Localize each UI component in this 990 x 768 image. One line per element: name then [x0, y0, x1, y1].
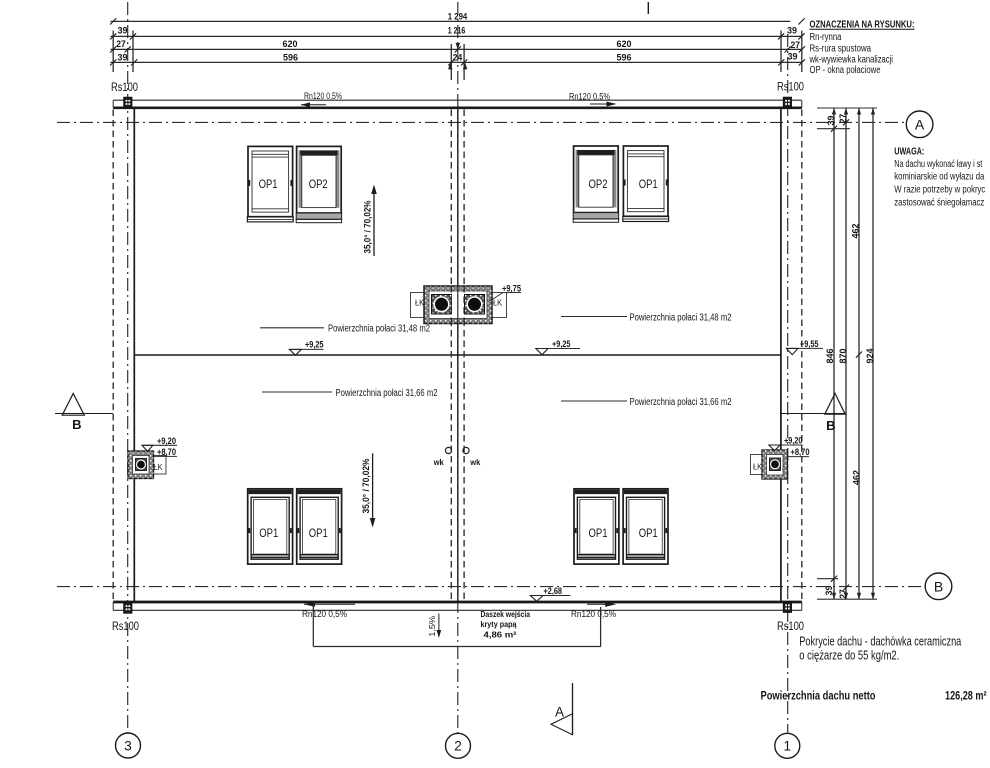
svg-text:ŁK: ŁK	[415, 298, 424, 308]
svg-text:2: 2	[454, 739, 462, 754]
svg-text:Rn120 0,5%: Rn120 0,5%	[304, 91, 342, 101]
svg-text:kominiarskie od wyłazu da: kominiarskie od wyłazu da	[894, 172, 984, 183]
svg-text:+9,25: +9,25	[552, 339, 571, 349]
svg-text:Powierzchnia połaci 31,66 m2: Powierzchnia połaci 31,66 m2	[630, 397, 732, 408]
svg-text:126,28 m²: 126,28 m²	[945, 688, 987, 702]
svg-text:596: 596	[617, 52, 632, 63]
svg-text:620: 620	[617, 39, 632, 50]
svg-text:wk: wk	[433, 457, 444, 467]
svg-text:39: 39	[788, 51, 798, 62]
svg-text:39: 39	[824, 586, 835, 596]
svg-text:Rn120 0,5%: Rn120 0,5%	[302, 609, 347, 619]
svg-text:ŁK: ŁK	[154, 462, 163, 472]
svg-text:OP1: OP1	[309, 528, 328, 540]
svg-text:+9,55: +9,55	[800, 339, 819, 349]
svg-text:ŁK: ŁK	[493, 298, 502, 308]
svg-text:846: 846	[825, 349, 836, 364]
svg-text:+9,75: +9,75	[502, 283, 521, 293]
svg-text:Pokrycie dachu - dachówka cera: Pokrycie dachu - dachówka ceramiczna	[799, 634, 961, 648]
svg-text:27: 27	[838, 589, 849, 599]
svg-text:39: 39	[118, 52, 128, 63]
svg-text:620: 620	[283, 39, 298, 50]
svg-text:1,5%: 1,5%	[427, 615, 437, 636]
svg-text:462: 462	[852, 470, 863, 485]
svg-text:39: 39	[787, 26, 797, 37]
svg-text:1 216: 1 216	[448, 26, 466, 37]
svg-text:o ciężarze do 55 kg/m2.: o ciężarze do 55 kg/m2.	[799, 648, 899, 662]
svg-text:462: 462	[851, 224, 862, 239]
svg-text:B: B	[826, 418, 835, 433]
svg-text:Rn120 0,5%: Rn120 0,5%	[571, 609, 616, 619]
svg-text:+9,25: +9,25	[305, 340, 324, 350]
svg-text:Rn120 0,5%: Rn120 0,5%	[569, 91, 610, 101]
svg-text:35,0° / 70,02%: 35,0° / 70,02%	[363, 201, 373, 254]
svg-text:1: 1	[784, 739, 792, 754]
svg-text:A: A	[555, 705, 564, 720]
svg-text:OP1: OP1	[589, 528, 608, 540]
svg-text:3: 3	[124, 738, 132, 753]
svg-text:ŁK: ŁK	[753, 462, 762, 472]
svg-text:+2,68: +2,68	[544, 586, 563, 596]
svg-text:+9,20: +9,20	[784, 435, 803, 445]
svg-text:Powierzchnia połaci 31,48 m2: Powierzchnia połaci 31,48 m2	[328, 323, 430, 334]
svg-text:27: 27	[791, 40, 801, 51]
svg-text:OP2: OP2	[589, 179, 608, 191]
svg-text:OP1: OP1	[259, 528, 278, 540]
svg-text:Powierzchnia połaci 31,48 m2: Powierzchnia połaci 31,48 m2	[630, 313, 732, 324]
svg-text:wk: wk	[469, 457, 480, 467]
svg-text:27: 27	[116, 39, 126, 50]
svg-text:+8,70: +8,70	[791, 447, 810, 457]
svg-text:Rs100: Rs100	[112, 621, 139, 633]
svg-text:+9,20: +9,20	[157, 436, 176, 446]
svg-text:OP2: OP2	[309, 179, 328, 191]
svg-text:OP1: OP1	[639, 179, 658, 191]
svg-text:B: B	[934, 578, 943, 594]
svg-text:39: 39	[826, 116, 837, 126]
svg-text:Rs-rura spustowa: Rs-rura spustowa	[810, 43, 872, 54]
svg-text:924: 924	[865, 348, 876, 364]
svg-text:zastosować śniegołamacz: zastosować śniegołamacz	[894, 198, 984, 209]
svg-text:OP1: OP1	[259, 179, 278, 191]
svg-text:UWAGA:: UWAGA:	[894, 146, 924, 158]
svg-text:Rs100: Rs100	[777, 621, 804, 633]
svg-text:Powierzchnia dachu netto: Powierzchnia dachu netto	[761, 688, 876, 702]
svg-text:Rn-rynna: Rn-rynna	[810, 32, 842, 43]
svg-text:27: 27	[838, 114, 849, 124]
svg-text:Daszek wejścia: Daszek wejścia	[481, 609, 531, 619]
svg-text:B: B	[72, 417, 81, 432]
svg-text:Powierzchnia połaci 31,66 m2: Powierzchnia połaci 31,66 m2	[336, 388, 438, 399]
svg-text:A: A	[915, 116, 925, 132]
svg-text:+8,70: +8,70	[157, 447, 176, 457]
svg-text:35,0° / 70,02%: 35,0° / 70,02%	[361, 459, 371, 514]
svg-text:Rs100: Rs100	[777, 82, 804, 94]
svg-text:wk-wywiewka kanalizacji: wk-wywiewka kanalizacji	[809, 54, 893, 65]
svg-text:4,86 m²: 4,86 m²	[484, 630, 517, 640]
svg-text:kryty papą: kryty papą	[481, 619, 517, 629]
svg-text:596: 596	[283, 52, 298, 63]
svg-text:Rs100: Rs100	[111, 82, 138, 94]
svg-text:39: 39	[118, 26, 128, 37]
svg-text:OP - okna połaciowe: OP - okna połaciowe	[810, 65, 881, 76]
svg-text:870: 870	[838, 349, 849, 364]
svg-text:W razie potrzeby w pokryc: W razie potrzeby w pokryc	[894, 185, 985, 196]
svg-text:OP1: OP1	[639, 528, 658, 540]
svg-text:Na dachu wykonać ławy i st: Na dachu wykonać ławy i st	[894, 159, 982, 170]
svg-text:OZNACZENIA NA RYSUNKU:: OZNACZENIA NA RYSUNKU:	[810, 19, 915, 30]
